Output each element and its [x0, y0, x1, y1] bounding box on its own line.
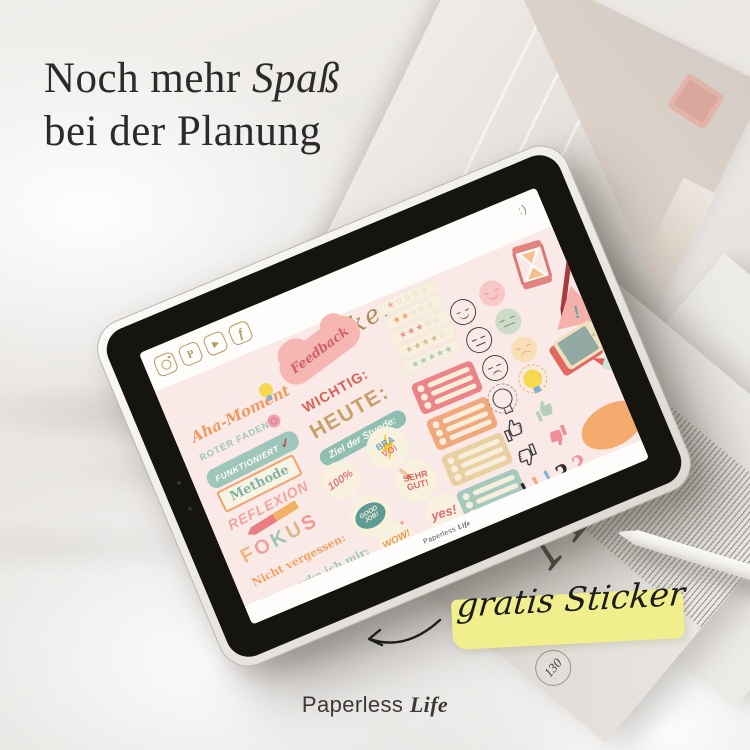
- thumbs-down-red-icon: [542, 420, 576, 453]
- brand-logo: Paperless Life: [0, 692, 750, 718]
- front-camera-icon: [187, 506, 192, 511]
- pinterest-icon[interactable]: [177, 340, 204, 367]
- facebook-icon[interactable]: [227, 319, 254, 346]
- page-number: 130: [541, 655, 566, 680]
- headline-line1-emphasis: Spaß: [252, 55, 340, 102]
- lightbulb-doodle-icon: [489, 385, 515, 411]
- smiley-happy-pink-icon: [475, 276, 509, 310]
- thumbs-up-green-icon: [526, 393, 561, 426]
- front-camera-icon: [176, 480, 181, 485]
- checkmark-icon: ✓: [278, 435, 294, 452]
- youtube-icon[interactable]: [202, 330, 229, 357]
- headline-line1: Noch mehr: [44, 55, 241, 102]
- highlighter-icon: [590, 353, 638, 380]
- star-rating-stickers: ★☆☆☆☆★★☆☆☆★★★☆☆★★★★☆★★★★★: [376, 280, 464, 378]
- smiley-emoticon: :): [517, 203, 530, 217]
- smiley-sad-outline-icon: [478, 351, 512, 385]
- smiley-neutral-outline-icon: [462, 323, 496, 357]
- hourglass-icon: [511, 239, 552, 290]
- hand-drawn-arrow-icon: [360, 614, 444, 658]
- brand-second-word: Life: [410, 692, 448, 717]
- warning-triangle-icon: !: [548, 281, 602, 330]
- headline-line2: bei der Planung: [44, 108, 321, 155]
- headline: Noch mehr Spaß bei der Planung: [44, 52, 340, 159]
- smiley-neutral-green-icon: [491, 304, 525, 338]
- brand-first-word: Paperless: [302, 692, 403, 717]
- lightbulb-yellow-icon: [520, 366, 545, 391]
- product-photo-scene: A 130 enkl | :) Sticker Aha-Moment Roter…: [0, 0, 750, 750]
- feedback-label: Feedback: [288, 324, 352, 377]
- smiley-sad-orange-icon: [507, 332, 541, 366]
- instagram-icon[interactable]: [152, 351, 179, 378]
